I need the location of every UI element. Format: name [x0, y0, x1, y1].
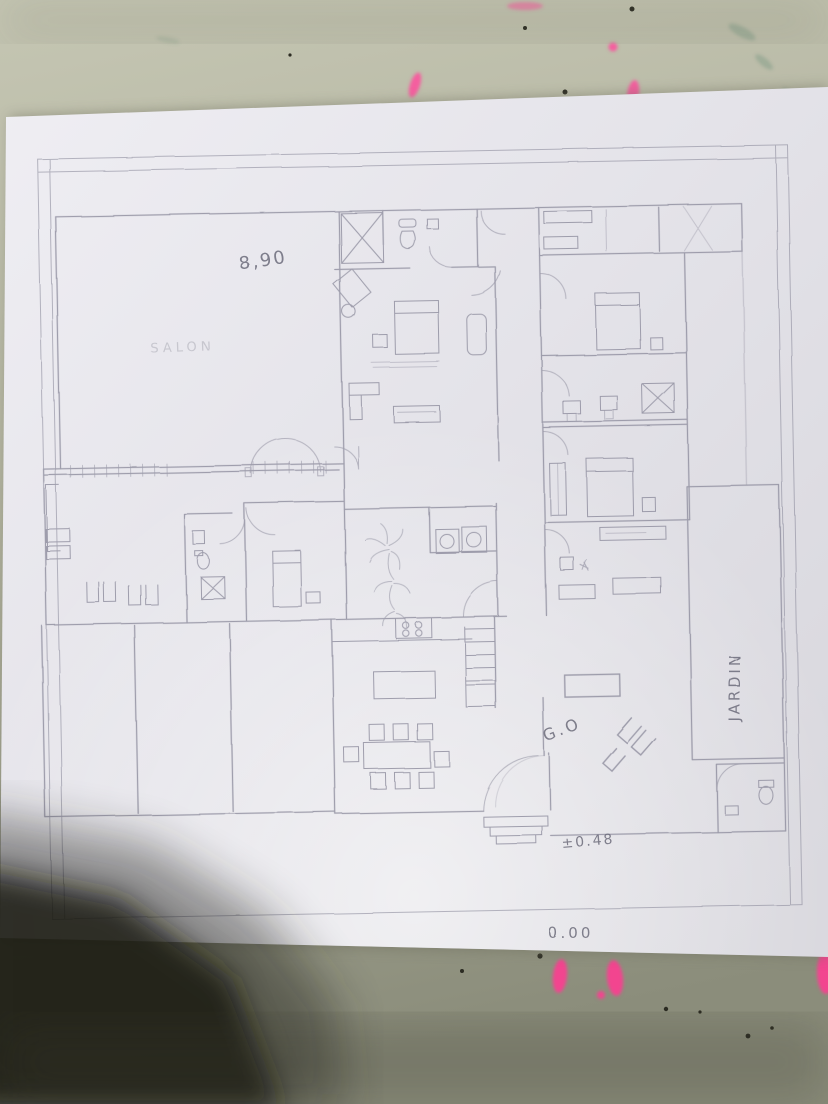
floor-plan-photo: 8,90 SALON JARDIN G.O ±0.48 0.00 — [0, 0, 828, 1104]
salon-label: SALON — [150, 339, 215, 356]
jardin-label: JARDIN — [726, 652, 744, 723]
photo-of-floor-plan-sketch: 8,90 SALON JARDIN G.O ±0.48 0.00 — [0, 0, 828, 1104]
level-base: 0.00 — [548, 924, 593, 942]
paper-sheet — [0, 86, 828, 958]
